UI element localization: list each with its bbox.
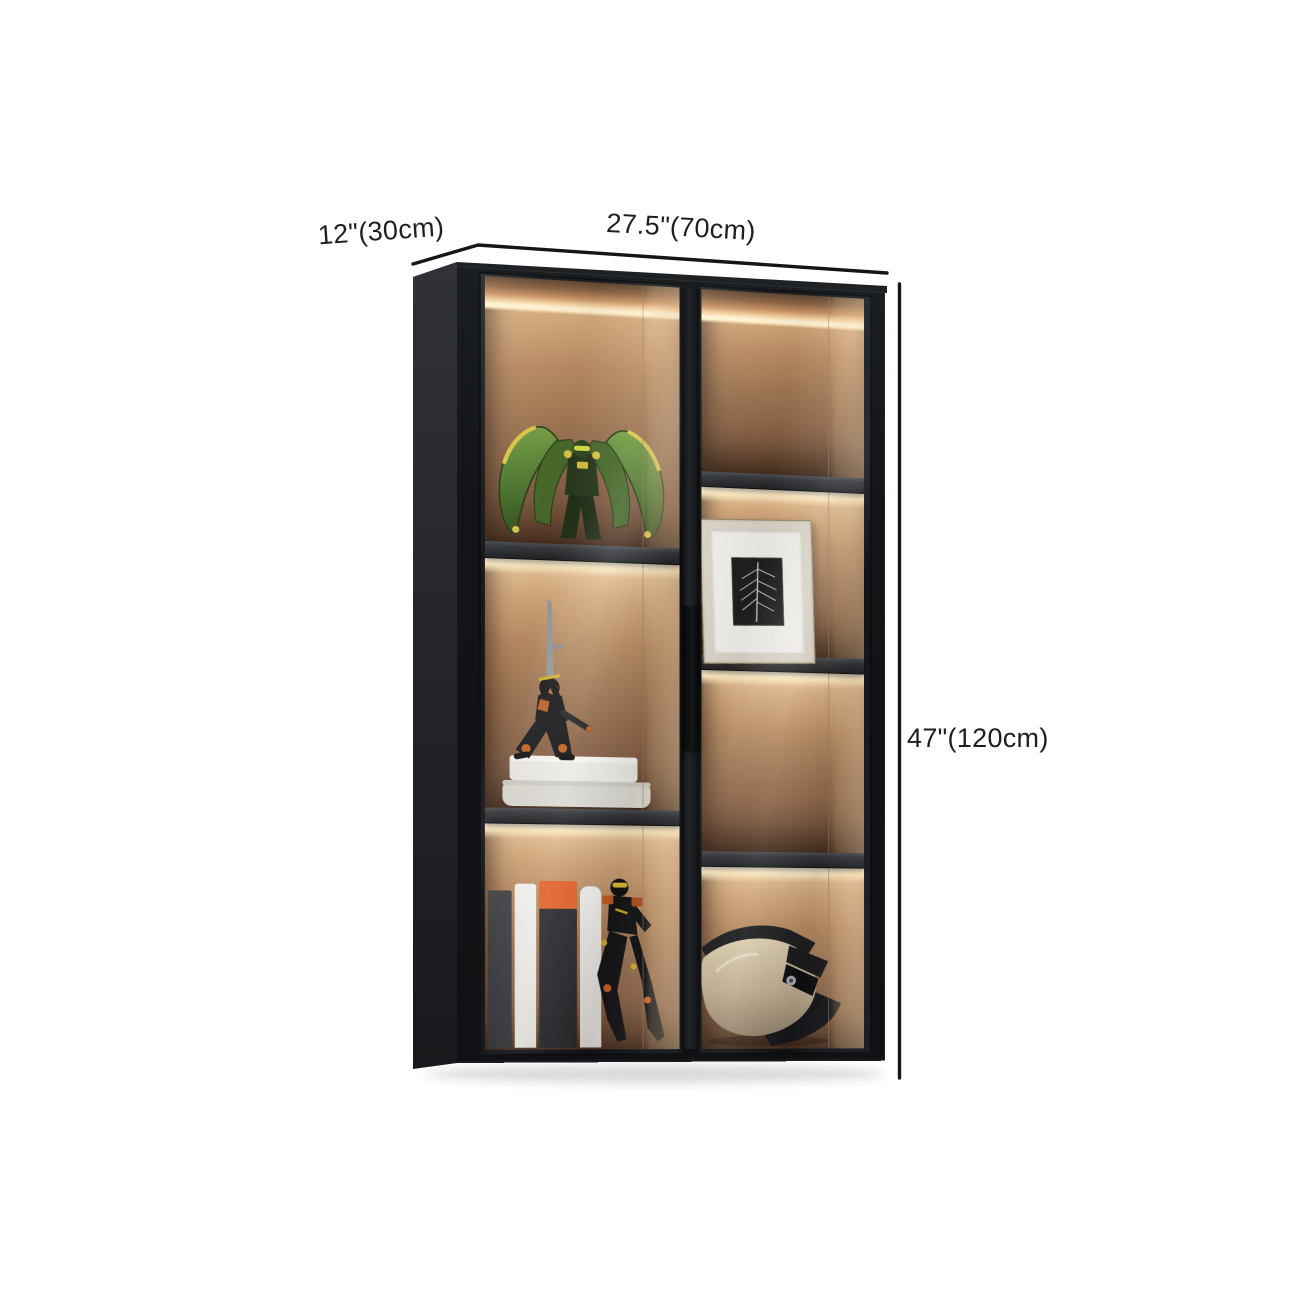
compartment-right-4 bbox=[701, 866, 864, 1049]
shelf-right-3 bbox=[701, 851, 864, 869]
framed-leaf-artwork bbox=[699, 519, 815, 664]
green-mecha-figurine bbox=[487, 402, 676, 549]
book-black-orange bbox=[539, 881, 577, 1048]
compartment-left-3 bbox=[485, 822, 680, 1049]
display-cabinet bbox=[457, 266, 885, 1063]
door-handle bbox=[683, 606, 698, 751]
height-dimension-label: 47"(120cm) bbox=[907, 723, 1049, 754]
compartment-left-1 bbox=[485, 276, 680, 549]
picture-mat bbox=[711, 530, 805, 654]
leaf-art bbox=[731, 557, 784, 626]
motocross-helmet bbox=[701, 917, 846, 1047]
product-photo-stage: 12"(30cm) 27.5"(70cm) 47"(120cm) bbox=[0, 0, 1300, 1300]
samurai-figurine-on-white-books bbox=[501, 598, 653, 811]
perspective-wrapper bbox=[0, 0, 1300, 1300]
shelf-left-2 bbox=[485, 807, 680, 826]
book-dark bbox=[488, 890, 512, 1048]
compartment-right-1 bbox=[701, 289, 864, 479]
action-figure bbox=[587, 869, 667, 1047]
book-white bbox=[515, 884, 536, 1048]
compartment-left-2 bbox=[485, 557, 680, 811]
compartment-right-3 bbox=[701, 669, 864, 853]
vertical-books bbox=[488, 880, 602, 1048]
